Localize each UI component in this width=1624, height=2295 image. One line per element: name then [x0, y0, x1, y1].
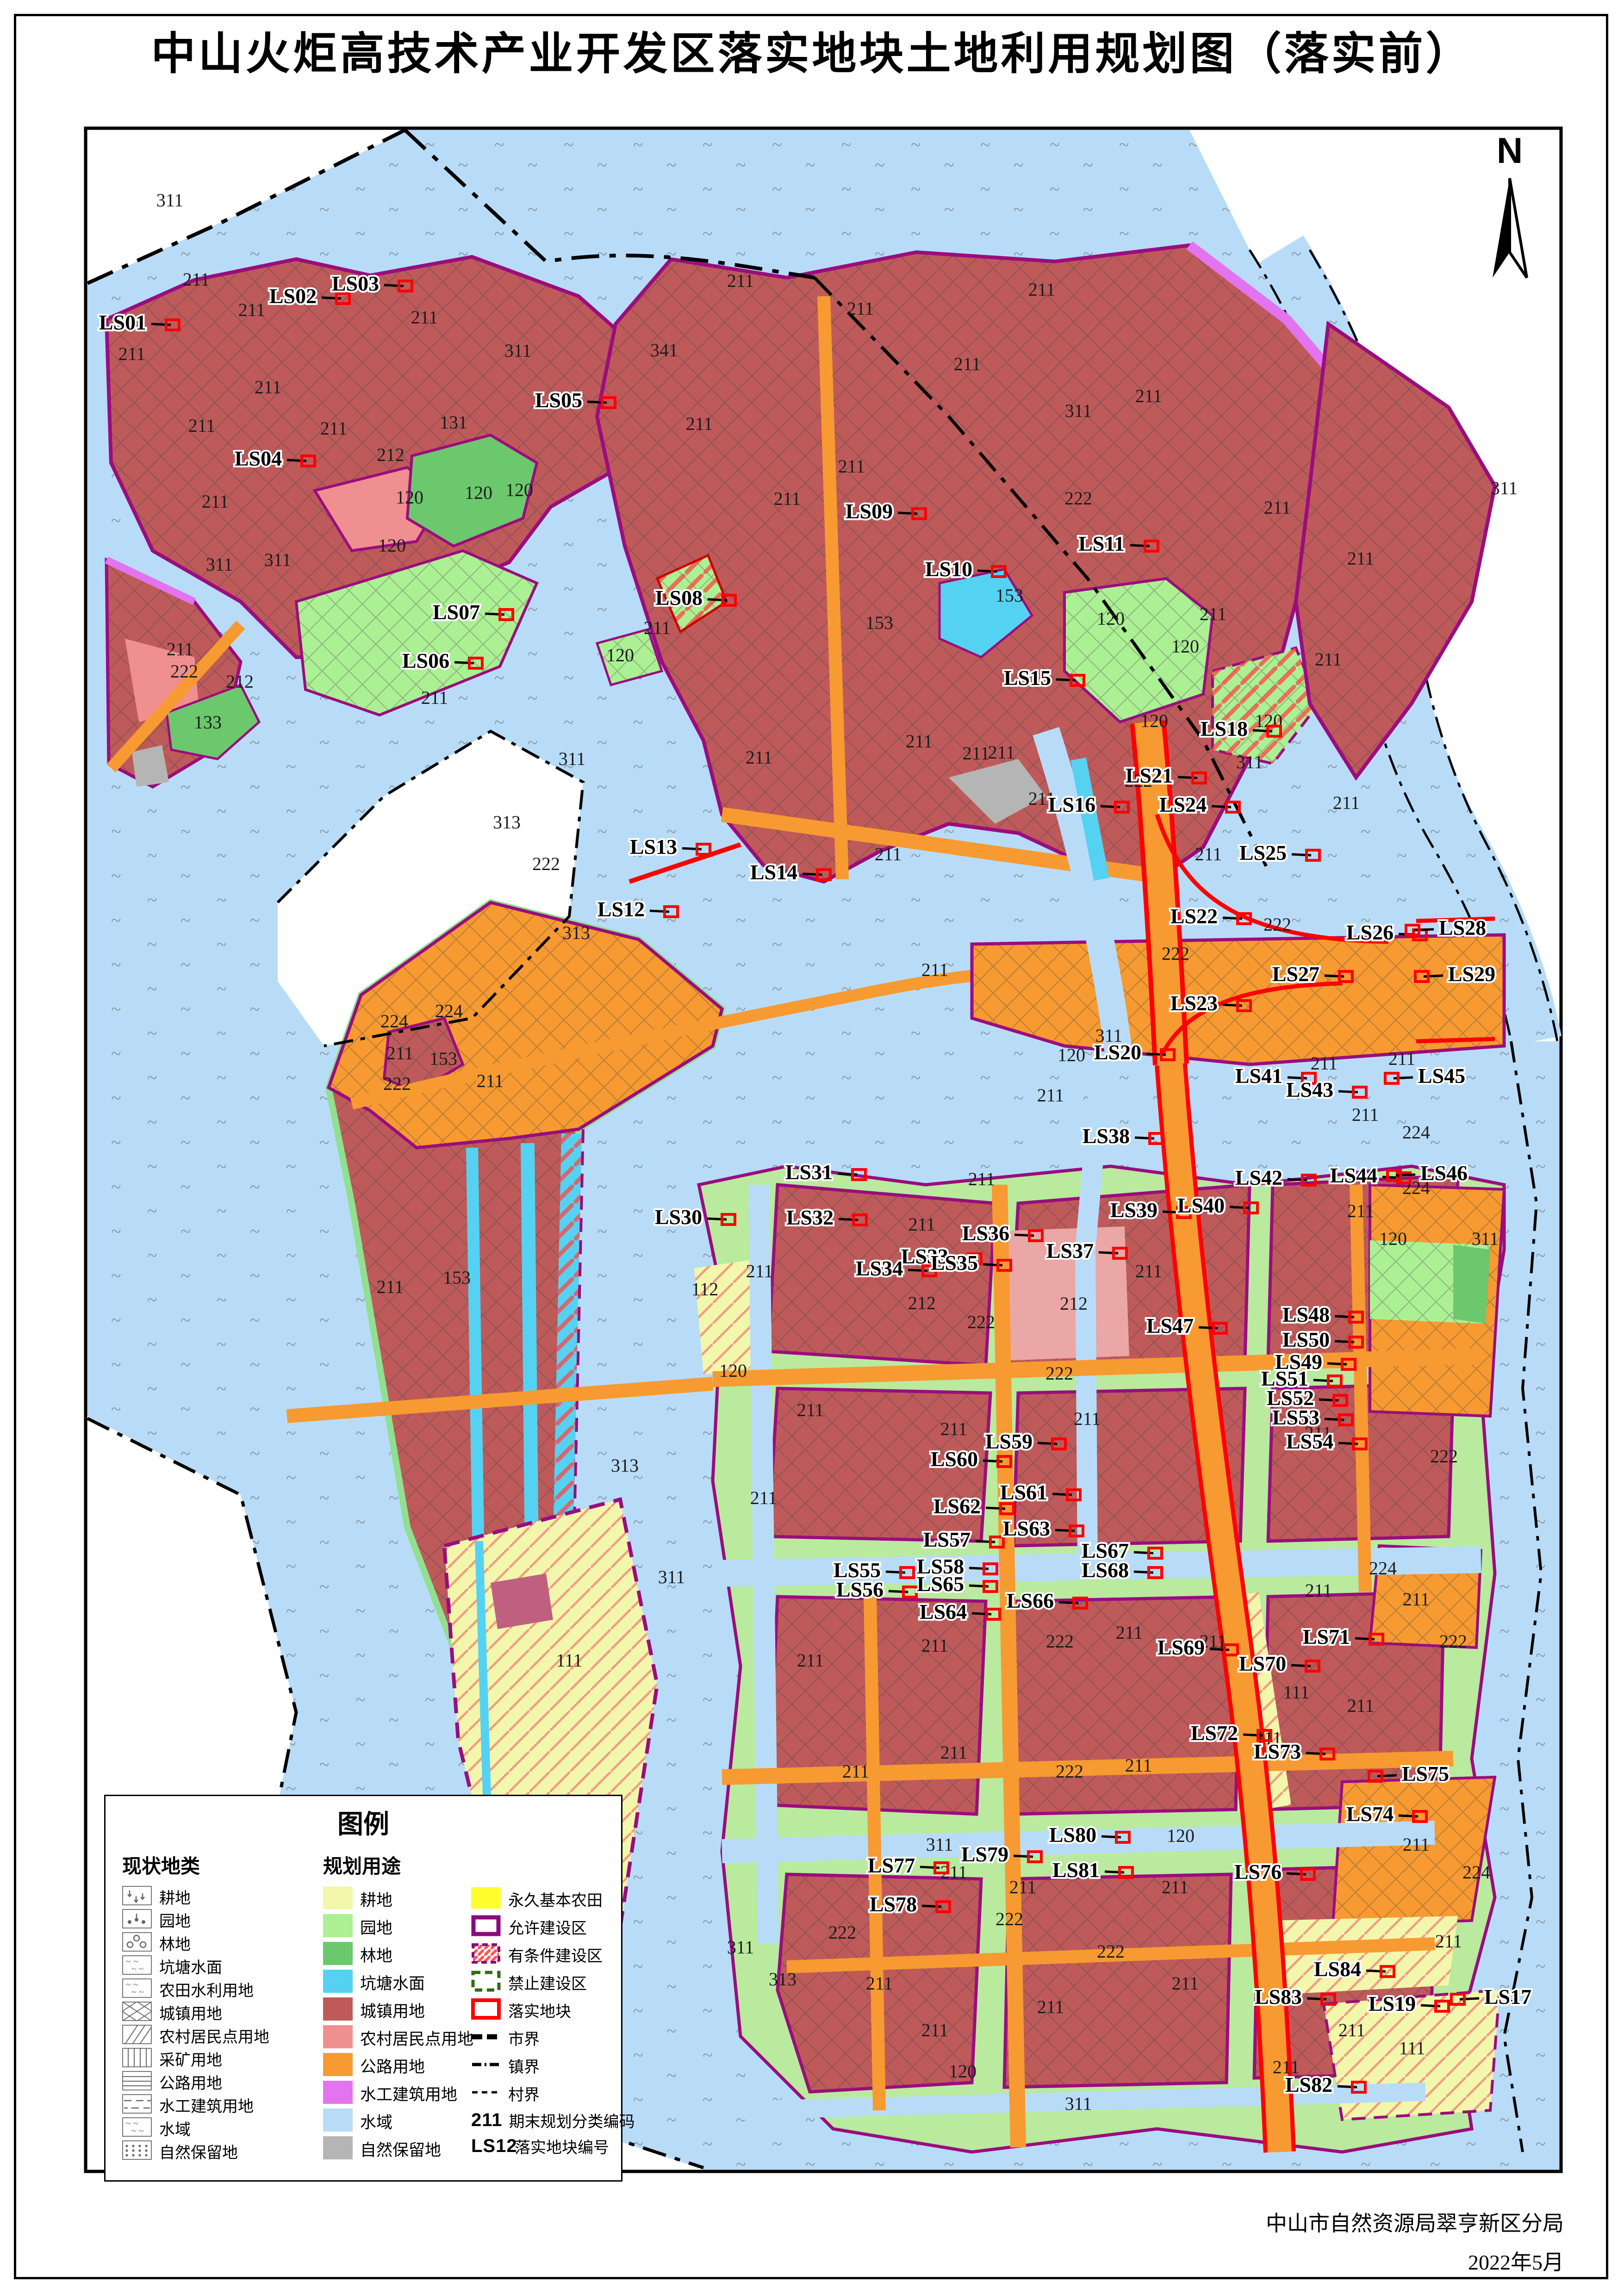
legend-planned-5-label: 农村居民点用地: [360, 2026, 473, 2050]
landuse-code-211: 211: [183, 269, 210, 290]
plot-leader-line: [969, 1568, 989, 1569]
plot-leader-line: [1101, 1836, 1121, 1837]
landuse-code-211: 211: [255, 377, 282, 398]
landuse-code-111: 111: [556, 1650, 582, 1671]
legend-overlay-7-swatch: [471, 2082, 501, 2105]
svg-text:~ ~: ~ ~: [131, 2126, 144, 2136]
landuse-code-211: 211: [866, 1973, 893, 1994]
legend-overlay-1-label: 允许建设区: [508, 1916, 587, 1938]
plot-label-LS39: LS39: [1110, 1198, 1157, 1222]
legend-current-header: 现状地类: [122, 1851, 200, 1879]
legend-planned-4: 城镇用地: [323, 1996, 467, 2024]
landuse-code-211: 211: [1338, 2020, 1366, 2040]
landuse-code-211: 211: [1125, 1755, 1152, 1776]
legend-planned-7-label: 水工建筑用地: [360, 2082, 457, 2105]
plot-label-LS28: LS28: [1439, 916, 1486, 939]
legend-current-5-swatch: [122, 2002, 152, 2023]
plot-leader-line: [1338, 2086, 1357, 2087]
legend-planned-5-swatch: [323, 2025, 353, 2051]
landuse-code-311: 311: [1065, 2093, 1092, 2114]
legend-current-10-swatch: ~ ~~ ~: [122, 2117, 152, 2139]
landuse-code-211: 211: [988, 742, 1015, 763]
landuse-code-211: 211: [774, 488, 801, 509]
landuse-code-211: 211: [1435, 1931, 1462, 1952]
legend-planned-3-swatch: [323, 1970, 353, 1995]
legend-overlay-4: 落实地块: [471, 1996, 619, 2024]
plot-label-LS23: LS23: [1170, 991, 1218, 1015]
plot-label-LS30: LS30: [655, 1205, 702, 1229]
plot-label-LS26: LS26: [1346, 920, 1394, 944]
plot-leader-line: [1253, 730, 1272, 731]
legend-code-sample-label: 期末规划分类编码: [509, 2109, 635, 2132]
landuse-code-311: 311: [1236, 752, 1263, 772]
landuse-code-153: 153: [996, 585, 1023, 606]
plot-label-LS56: LS56: [836, 1578, 884, 1601]
legend-planned-2-label: 林地: [360, 1943, 392, 1966]
plot-label-LS11: LS11: [1078, 532, 1125, 555]
plot-leader-line: [1199, 1327, 1218, 1328]
plot-label-LS40: LS40: [1177, 1194, 1225, 1217]
plot-label-LS31: LS31: [785, 1160, 833, 1184]
plot-label-LS27: LS27: [1272, 962, 1319, 986]
legend-current-6-swatch: [122, 2025, 152, 2046]
plot-label-LS60: LS60: [931, 1447, 978, 1471]
landuse-code-311: 311: [727, 1937, 754, 1958]
landuse-code-153: 153: [443, 1267, 471, 1288]
landuse-code-211: 211: [1388, 1048, 1416, 1069]
plot-leader-line: [1105, 1872, 1124, 1872]
plot-leader-line: [384, 285, 404, 286]
legend-planned-8: 水域: [323, 2107, 467, 2135]
plot-label-LS72: LS72: [1191, 1721, 1238, 1745]
plot-leader-line: [1307, 1998, 1326, 1999]
legend-overlay-5-label: 市界: [508, 2027, 540, 2049]
landuse-code-211: 211: [1333, 792, 1360, 813]
landuse-code-120: 120: [606, 645, 634, 665]
legend-overlay-3-swatch: [471, 1971, 501, 1994]
legend-overlay-0: 永久基本农田: [471, 1885, 619, 1913]
plot-label-LS38: LS38: [1083, 1124, 1130, 1148]
plot-label-LS71: LS71: [1303, 1625, 1350, 1648]
plot-label-LS59: LS59: [985, 1430, 1033, 1453]
landuse-code-222: 222: [996, 1909, 1023, 1929]
plot-leader-line: [922, 1906, 941, 1907]
legend-planned-2-swatch: [323, 1942, 353, 1967]
landuse-code-212: 212: [226, 671, 254, 692]
plot-leader-line: [682, 848, 702, 849]
landuse-code-120: 120: [1167, 1825, 1195, 1846]
landuse-code-211: 211: [847, 298, 874, 319]
landuse-code-120: 120: [719, 1360, 747, 1381]
landuse-code-211: 211: [320, 418, 348, 439]
plot-label-LS74: LS74: [1346, 1802, 1394, 1826]
legend-overlay-2: 有条件建设区: [471, 1940, 619, 1968]
legend-planned-0-label: 耕地: [360, 1887, 392, 1911]
legend-overlay-4-label: 落实地块: [508, 1999, 571, 2021]
landuse-code-120: 120: [396, 487, 423, 508]
plot-leader-line: [1338, 1091, 1358, 1092]
plot-label-LS84: LS84: [1314, 1957, 1361, 1981]
plot-leader-line: [1291, 1665, 1311, 1666]
plot-label-LS76: LS76: [1234, 1860, 1282, 1884]
landuse-code-211: 211: [1264, 497, 1291, 518]
legend-planned-3: 坑塘水面: [323, 1968, 467, 1996]
landuse-code-222: 222: [1064, 488, 1092, 509]
legend-overlay-column: 永久基本农田允许建设区有条件建设区禁止建设区落实地块市界镇界村界211期末规划分…: [471, 1885, 619, 2159]
plot-label-LS81: LS81: [1052, 1858, 1100, 1882]
legend-planned-4-swatch: [323, 1997, 353, 2023]
landuse-code-222: 222: [532, 853, 560, 874]
landuse-code-211: 211: [1074, 1408, 1101, 1429]
plot-label-LS47: LS47: [1146, 1314, 1194, 1337]
landuse-code-211: 211: [188, 415, 216, 436]
landuse-code-222: 222: [1439, 1631, 1467, 1652]
plot-leader-line: [838, 1174, 857, 1175]
plot-label-LS13: LS13: [630, 835, 677, 858]
plot-leader-line: [1230, 1207, 1249, 1208]
plot-label-LS54: LS54: [1286, 1430, 1333, 1453]
landuse-code-313: 313: [769, 1969, 796, 1990]
landuse-code-211: 211: [1037, 1996, 1064, 2017]
plot-leader-line: [1335, 1341, 1354, 1342]
landuse-code-211: 211: [644, 617, 671, 638]
plot-leader-line: [1134, 1572, 1153, 1573]
landuse-code-120: 120: [1097, 608, 1125, 629]
plot-label-LS73: LS73: [1254, 1740, 1301, 1763]
plot-label-LS36: LS36: [962, 1221, 1009, 1245]
landuse-code-211: 211: [906, 731, 933, 752]
plot-label-LS45: LS45: [1418, 1064, 1465, 1088]
plot-leader-line: [898, 513, 917, 514]
landuse-code-211: 211: [118, 343, 146, 364]
plot-leader-line: [1038, 1443, 1057, 1444]
landuse-code-211: 211: [167, 639, 194, 659]
plot-leader-line: [983, 1264, 1002, 1265]
plot-leader-line: [1424, 976, 1443, 976]
legend-planned-4-label: 城镇用地: [360, 1998, 425, 2022]
landuse-code-311: 311: [926, 1834, 953, 1855]
landuse-code-120: 120: [465, 482, 492, 503]
landuse-code-120: 120: [949, 2061, 977, 2082]
legend-current-1-label: 园地: [159, 1909, 191, 1931]
plot-label-LS19: LS19: [1369, 1992, 1416, 2015]
plot-leader-line: [1243, 1735, 1263, 1735]
legend-current-7-label: 采矿用地: [159, 2047, 222, 2070]
legend-current-3-swatch: ~ ~~ ~: [122, 1955, 152, 1977]
plot-label-LS78: LS78: [870, 1892, 917, 1916]
landuse-code-222: 222: [170, 661, 198, 682]
legend-planned-3-label: 坑塘水面: [360, 1971, 425, 1994]
landuse-code-311: 311: [504, 340, 532, 361]
landuse-code-211: 211: [797, 1650, 824, 1671]
landuse-code-341: 341: [650, 340, 678, 361]
landuse-code-222: 222: [1056, 1761, 1083, 1782]
plot-leader-line: [1130, 545, 1150, 546]
plot-leader-line: [908, 1270, 927, 1271]
legend-planned-8-label: 水域: [360, 2109, 392, 2133]
legend-current-10-label: 水域: [159, 2117, 191, 2140]
plot-label-LS57: LS57: [923, 1528, 971, 1551]
publisher: 中山市自然资源局翠亨新区分局: [1266, 2207, 1564, 2237]
landuse-code-313: 313: [562, 922, 590, 943]
landuse-code-222: 222: [1045, 1363, 1073, 1384]
landuse-code-224: 224: [380, 1011, 408, 1032]
legend-current-5: 城镇用地: [122, 2001, 317, 2024]
landuse-code-120: 120: [1171, 636, 1199, 657]
plot-leader-line: [889, 1591, 908, 1592]
landuse-code-211: 211: [727, 270, 754, 291]
landuse-code-211: 211: [746, 1261, 773, 1281]
plot-label-LS06: LS06: [402, 649, 449, 672]
svg-text:~ ~: ~ ~: [131, 1964, 144, 1974]
legend-planned-5: 农村居民点用地: [323, 2024, 467, 2052]
legend-overlay-3-label: 禁止建设区: [508, 1971, 587, 1994]
plot-label-LS43: LS43: [1286, 1078, 1333, 1101]
landuse-code-222: 222: [967, 1312, 995, 1332]
landuse-code-224: 224: [1462, 1862, 1490, 1883]
plot-leader-line: [1056, 679, 1076, 680]
landuse-code-211: 211: [1311, 1053, 1338, 1074]
landuse-code-211: 211: [1347, 548, 1375, 569]
landuse-code-120: 120: [1379, 1228, 1407, 1249]
landuse-code-311: 311: [264, 549, 292, 570]
landuse-code-211: 211: [940, 1742, 968, 1763]
plot-leader-line: [1288, 1179, 1307, 1180]
legend-plot-sample-label: 落实地块编号: [515, 2135, 609, 2158]
svg-text:~ ~: ~ ~: [131, 1987, 144, 1997]
plot-label-LS48: LS48: [1282, 1303, 1330, 1326]
landuse-code-211: 211: [797, 1399, 824, 1420]
landuse-code-222: 222: [1263, 914, 1291, 935]
legend-current-column: 耕地园地林地~ ~~ ~坑塘水面~ ~~ ~农田水利用地城镇用地农村居民点用地采…: [122, 1885, 317, 2163]
plot-leader-line: [1287, 1873, 1306, 1874]
legend-overlay-6-label: 镇界: [508, 2054, 540, 2077]
legend-current-9-swatch: [122, 2094, 152, 2116]
plot-label-LS10: LS10: [925, 557, 972, 581]
plot-label-LS75: LS75: [1402, 1762, 1449, 1785]
landuse-code-153: 153: [429, 1048, 457, 1069]
plot-leader-line: [969, 1586, 989, 1586]
legend-current-4: ~ ~~ ~农田水利用地: [122, 1978, 317, 2001]
plot-leader-line: [1460, 1998, 1479, 1999]
landuse-code-211: 211: [1116, 1622, 1143, 1643]
plot-label-LS68: LS68: [1082, 1558, 1129, 1582]
plot-label-LS41: LS41: [1235, 1064, 1282, 1088]
landuse-code-211: 211: [1009, 1877, 1037, 1897]
legend-code-sample: 211期末规划分类编码: [471, 2107, 619, 2133]
landuse-code-211: 211: [963, 743, 990, 764]
legend-overlay-3: 禁止建设区: [471, 1968, 619, 1996]
landuse-code-211: 211: [875, 844, 902, 865]
landuse-code-211: 211: [386, 1043, 414, 1064]
plot-label-LS01: LS01: [99, 311, 146, 334]
landuse-code-111: 111: [1399, 2038, 1425, 2059]
landuse-code-211: 211: [921, 959, 949, 980]
plot-leader-line: [839, 1219, 858, 1220]
plot-leader-line: [1014, 1235, 1034, 1236]
legend-current-11-label: 自然保留地: [159, 2140, 238, 2163]
legend-overlay-5: 市界: [471, 2024, 619, 2052]
landuse-code-211: 211: [411, 307, 438, 328]
legend-current-5-label: 城镇用地: [159, 2001, 222, 2024]
legend-current-0: 耕地: [122, 1885, 317, 1908]
plot-label-LS17: LS17: [1484, 1985, 1531, 2009]
plot-leader-line: [1223, 918, 1242, 919]
legend-plot-sample: LS12落实地块编号: [471, 2133, 619, 2159]
legend-overlay-7: 村界: [471, 2079, 619, 2107]
legend-current-4-label: 农田水利用地: [159, 1978, 254, 2001]
legend-code-sample-code: 211: [471, 2110, 503, 2131]
landuse-code-211: 211: [750, 1487, 778, 1508]
plot-leader-line: [1414, 929, 1434, 930]
landuse-code-211: 211: [838, 456, 865, 477]
landuse-code-311: 311: [658, 1567, 685, 1587]
landuse-code-313: 313: [611, 1455, 639, 1476]
legend-current-11: 自然保留地: [122, 2140, 317, 2163]
landuse-code-211: 211: [1135, 1261, 1163, 1281]
plot-label-LS62: LS62: [933, 1494, 981, 1518]
landuse-code-131: 131: [440, 412, 467, 433]
plot-leader-line: [1052, 1494, 1072, 1495]
landuse-code-120: 120: [1058, 1045, 1085, 1065]
plot-label-LS07: LS07: [433, 600, 480, 624]
landuse-code-211: 211: [421, 687, 448, 708]
landuse-code-211: 211: [238, 299, 266, 320]
plot-leader-line: [1396, 1175, 1415, 1175]
landuse-code-311: 311: [559, 748, 586, 769]
legend-plot-sample-code: LS12: [471, 2136, 508, 2157]
legend-overlay-1-swatch: [471, 1915, 501, 1939]
plot-label-LS69: LS69: [1157, 1636, 1205, 1659]
legend-current-3-label: 坑塘水面: [159, 1955, 222, 1978]
plot-label-LS50: LS50: [1282, 1328, 1330, 1351]
legend-overlay-5-swatch: [471, 2026, 501, 2050]
plot-label-LS03: LS03: [332, 272, 379, 295]
plot-label-LS53: LS53: [1272, 1406, 1319, 1429]
landuse-code-311: 311: [1472, 1228, 1499, 1249]
plot-leader-line: [1059, 1602, 1078, 1603]
landuse-code-211: 211: [1347, 1695, 1375, 1716]
landuse-code-222: 222: [1097, 1941, 1125, 1962]
landuse-code-211: 211: [1195, 844, 1222, 865]
legend-overlay-2-swatch: [471, 1943, 501, 1966]
landuse-code-211: 211: [1403, 1589, 1430, 1610]
plot-label-LS05: LS05: [535, 388, 582, 412]
legend-current-0-label: 耕地: [159, 1885, 191, 1908]
plot-label-LS37: LS37: [1046, 1239, 1094, 1263]
plot-leader-line: [1366, 1971, 1386, 1972]
plot-leader-line: [485, 614, 504, 615]
plot-label-LS70: LS70: [1239, 1652, 1286, 1675]
legend-title: 图例: [106, 1804, 621, 1841]
legend-planned-8-swatch: [323, 2108, 353, 2134]
plot-leader-line: [1394, 1077, 1413, 1078]
landuse-code-211: 211: [746, 747, 773, 768]
legend-current-8-label: 公路用地: [159, 2071, 222, 2093]
legend-current-8: 公路用地: [122, 2070, 317, 2093]
landuse-code-222: 222: [383, 1073, 411, 1094]
landuse-code-211: 211: [1200, 603, 1227, 624]
plot-label-LS12: LS12: [597, 897, 645, 921]
legend-overlay-6-swatch: [471, 2054, 501, 2077]
legend-planned-0: 耕地: [323, 1885, 467, 1913]
landuse-code-211: 211: [202, 491, 229, 512]
landuse-code-211: 211: [1305, 1580, 1332, 1601]
legend-current-7-swatch: [122, 2048, 152, 2070]
landuse-code-211: 211: [968, 1169, 996, 1189]
legend-planned-6-swatch: [323, 2053, 353, 2078]
legend-panel: 图例 现状地类 规划用途 耕地园地林地~ ~~ ~坑塘水面~ ~~ ~农田水利用…: [104, 1795, 622, 2182]
landuse-code-211: 211: [1347, 1200, 1375, 1221]
legend-current-2: 林地: [122, 1931, 317, 1954]
landuse-code-222: 222: [1162, 943, 1189, 964]
landuse-code-211: 211: [921, 1635, 949, 1656]
legend-planned-6: 公路用地: [323, 2052, 467, 2079]
plot-leader-line: [1313, 1380, 1333, 1381]
landuse-code-211: 211: [686, 413, 713, 434]
plot-leader-line: [1325, 976, 1344, 976]
legend-overlay-1: 允许建设区: [471, 1913, 619, 1940]
plot-label-LS77: LS77: [868, 1853, 915, 1877]
legend-overlay-7-label: 村界: [508, 2082, 540, 2105]
legend-planned-7-swatch: [323, 2081, 353, 2106]
plot-leader-line: [1210, 1649, 1229, 1650]
plot-label-LS02: LS02: [269, 284, 317, 308]
plot-leader-line: [1134, 1552, 1153, 1553]
landuse-code-311: 311: [206, 554, 233, 575]
landuse-code-222: 222: [1430, 1446, 1458, 1467]
plot-leader-line: [920, 1867, 940, 1868]
landuse-code-211: 211: [921, 2020, 949, 2040]
plot-leader-line: [1382, 1177, 1402, 1178]
landuse-code-224: 224: [435, 1001, 463, 1021]
plot-label-LS25: LS25: [1239, 841, 1287, 865]
plot-leader-line: [1377, 1775, 1397, 1776]
plot-label-LS44: LS44: [1330, 1163, 1377, 1187]
legend-current-9: 水工建筑用地: [122, 2093, 317, 2116]
landuse-code-222: 222: [1046, 1631, 1074, 1652]
plot-label-LS64: LS64: [920, 1600, 967, 1623]
plot-leader-line: [1327, 1363, 1347, 1364]
plot-label-LS35: LS35: [931, 1251, 978, 1275]
plot-leader-line: [972, 1613, 991, 1614]
landuse-code-224: 224: [1369, 1558, 1397, 1579]
plot-leader-line: [1325, 1419, 1344, 1420]
legend-planned-1: 园地: [323, 1913, 467, 1940]
landuse-code-211: 211: [1403, 1834, 1430, 1855]
plot-label-LS18: LS18: [1201, 717, 1248, 740]
plot-leader-line: [983, 1461, 1002, 1462]
landuse-code-120: 120: [505, 479, 533, 500]
plot-label-LS34: LS34: [856, 1256, 903, 1280]
plot-label-LS20: LS20: [1094, 1040, 1141, 1064]
landuse-code-311: 311: [1491, 478, 1518, 498]
plot-label-LS46: LS46: [1420, 1161, 1468, 1185]
legend-planned-9: 自然保留地: [323, 2135, 467, 2163]
plot-leader-line: [986, 1508, 1005, 1509]
plot-label-LS61: LS61: [1000, 1480, 1047, 1504]
landuse-code-211: 211: [1315, 649, 1342, 670]
legend-overlay-2-label: 有条件建设区: [508, 1943, 603, 1966]
plot-label-LS83: LS83: [1255, 1985, 1302, 2009]
plot-label-LS66: LS66: [1007, 1589, 1054, 1612]
plot-leader-line: [1335, 1316, 1354, 1317]
landuse-code-211: 211: [1172, 1973, 1199, 1994]
landuse-code-211: 211: [1037, 1085, 1064, 1106]
landuse-code-211: 211: [1028, 279, 1056, 300]
legend-current-0-swatch: [122, 1886, 152, 1908]
landuse-code-313: 313: [493, 812, 521, 833]
